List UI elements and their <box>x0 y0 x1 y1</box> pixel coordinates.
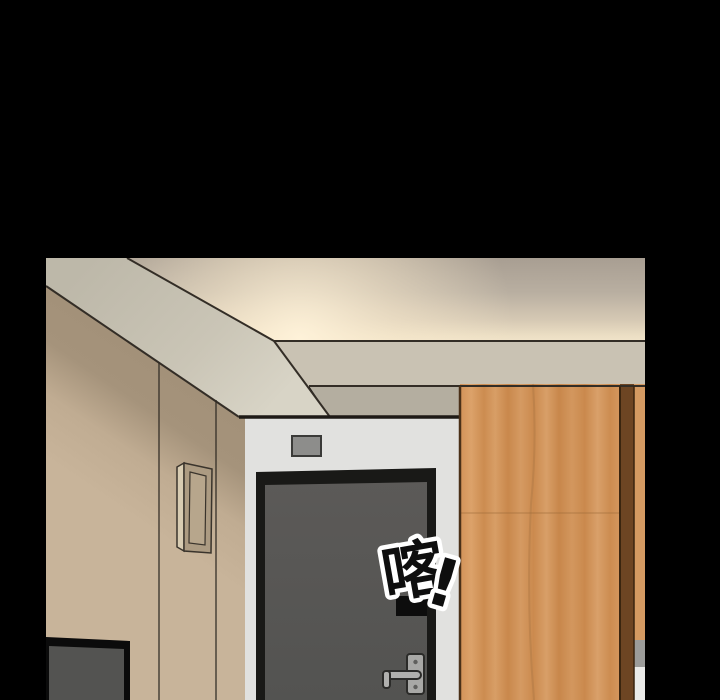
soffit-fascia <box>274 341 645 387</box>
handle-screw-bottom <box>413 685 417 689</box>
fascia-lower-strip <box>309 386 460 417</box>
door-handle-lever-tip <box>383 671 390 688</box>
comic-panel-illustration: 喀 ! <box>0 0 720 700</box>
comic-page: 然后...再把最后 仅剩的食物残渣留给我舔 <box>0 0 720 700</box>
wood-wall-panel <box>460 384 620 700</box>
edge-strip-gray-segment <box>634 640 645 667</box>
wall-recessed-frame <box>177 463 212 553</box>
wood-panel-gap <box>620 384 634 700</box>
wood-edge-strip <box>634 384 645 640</box>
handle-screw-top <box>413 660 417 664</box>
door-sign-plate <box>292 436 321 456</box>
edge-strip-white-segment <box>634 667 645 700</box>
tv-screen <box>49 646 124 700</box>
